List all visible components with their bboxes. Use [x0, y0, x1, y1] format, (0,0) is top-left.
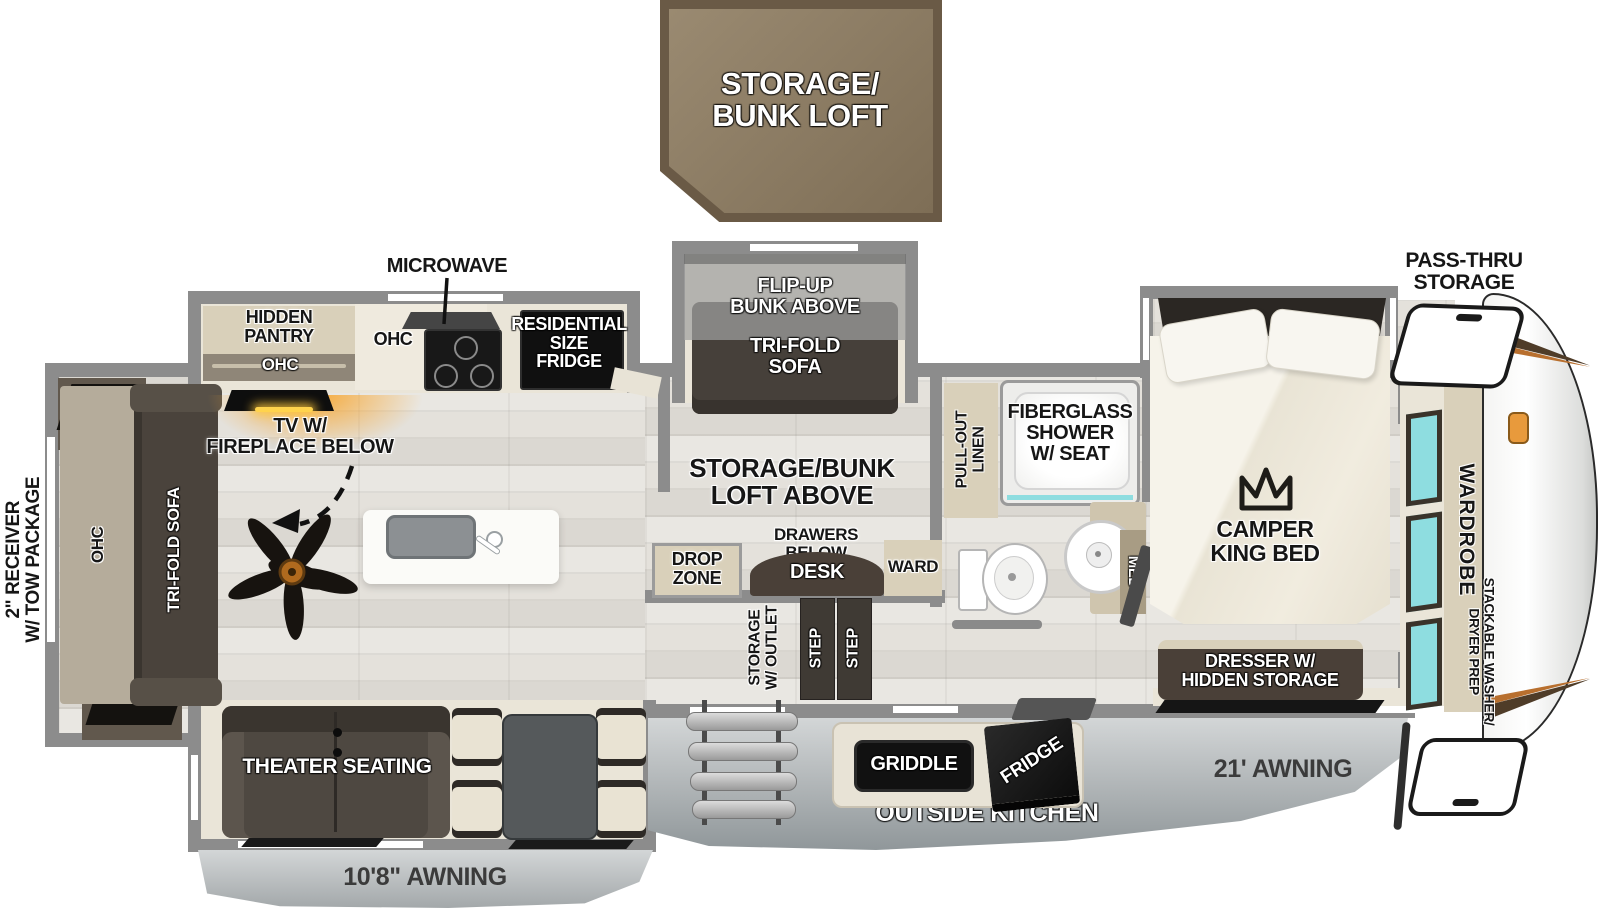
- tv-pointer-dashed: [300, 466, 352, 524]
- tv-pointer-arrowhead: [272, 509, 300, 533]
- pointer-overlay: [0, 0, 1600, 924]
- floorplan-canvas: STORAGE/ BUNK LOFT OHC TRI-FOLD SOFA 2" …: [0, 0, 1600, 924]
- microwave-pointer-line: [444, 278, 447, 324]
